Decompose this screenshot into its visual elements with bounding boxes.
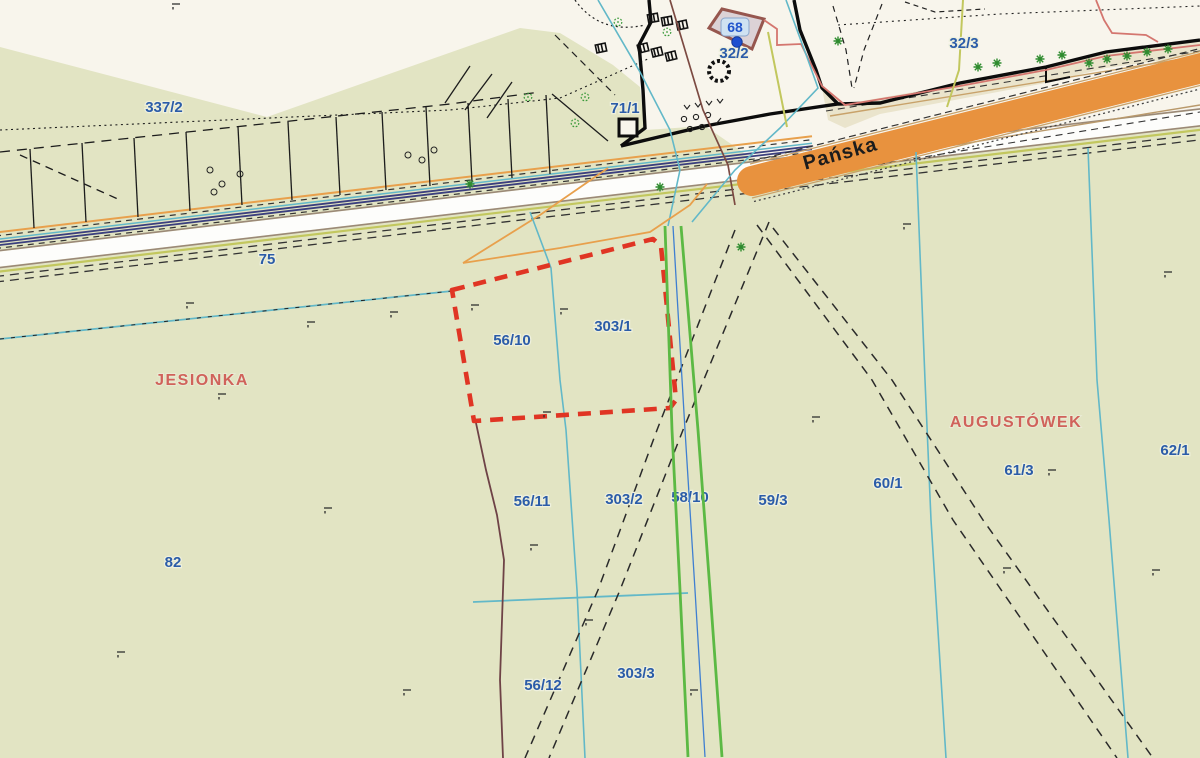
parcel-label-71-1: 71/1 bbox=[610, 100, 639, 117]
parcel-label-32-2: 32/2 bbox=[719, 45, 748, 62]
address-point-icon bbox=[732, 37, 742, 47]
parcel-label-303-1: 303/1 bbox=[594, 318, 632, 335]
parcel-label-62-1: 62/1 bbox=[1160, 442, 1189, 459]
parcel-label-61-3: 61/3 bbox=[1004, 462, 1033, 479]
region-label-augustowek: AUGUSTÓWEK bbox=[950, 412, 1082, 431]
building-68-number: 68 bbox=[727, 19, 743, 35]
parcel-label-60-1: 60/1 bbox=[873, 475, 902, 492]
parcel-label-56-10: 56/10 bbox=[493, 332, 531, 349]
parcel-label-56-11: 56/11 bbox=[514, 493, 551, 510]
parcel-label-59-3: 59/3 bbox=[758, 492, 787, 509]
parcel-label-82: 82 bbox=[165, 554, 182, 571]
parcel-label-337-2: 337/2 bbox=[145, 99, 183, 116]
parcel-label-56-12: 56/12 bbox=[524, 677, 562, 694]
small-building bbox=[619, 119, 637, 136]
parcel-label-303-3: 303/3 bbox=[617, 665, 655, 682]
parcel-label-303-2: 303/2 bbox=[605, 491, 643, 508]
parcel-label-32-3: 32/3 bbox=[949, 35, 978, 52]
parcel-label-75: 75 bbox=[259, 251, 276, 268]
map-canvas[interactable]: 337/2 71/1 32/2 32/3 75 56/10 303/1 82 5… bbox=[0, 0, 1200, 758]
region-label-jesionka: JESIONKA bbox=[155, 372, 249, 389]
cadastral-map-viewport: 337/2 71/1 32/2 32/3 75 56/10 303/1 82 5… bbox=[0, 0, 1200, 758]
